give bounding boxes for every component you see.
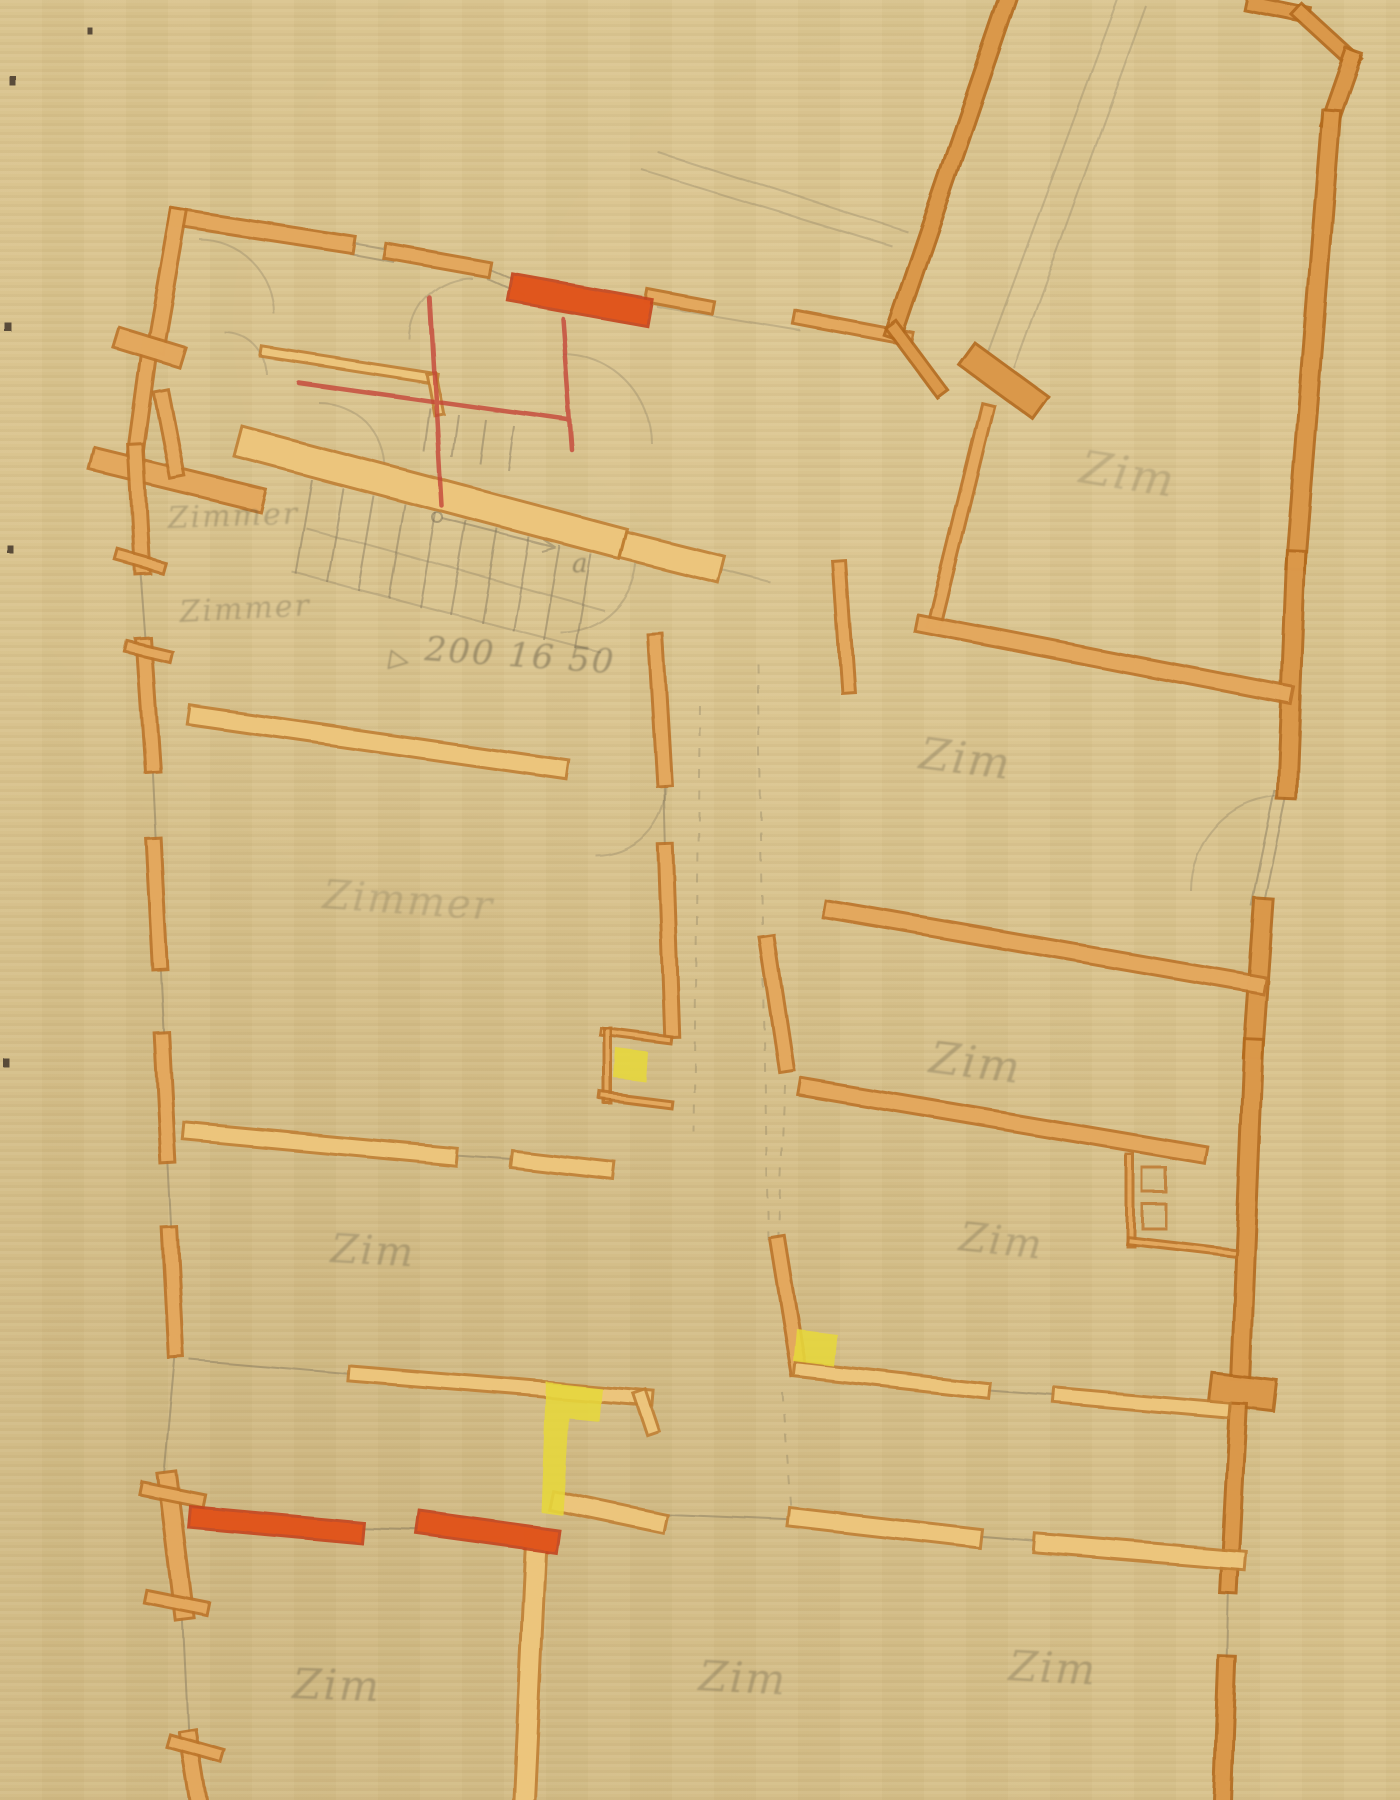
wall-segment (1044, 1544, 1236, 1560)
construction-lines (140, 0, 1287, 1736)
wall-segment (170, 1235, 176, 1350)
room-label: Zim (1074, 439, 1180, 508)
wall-segment (1062, 1396, 1222, 1410)
wall-segment (136, 452, 142, 566)
wall-segment (154, 846, 160, 962)
wall-segment (266, 352, 432, 378)
wall-segment (895, 4, 1006, 330)
room-label: Zim (327, 1226, 416, 1276)
wall-segment (254, 446, 608, 540)
wall-segment (524, 1542, 536, 1800)
wall-segment (808, 1088, 1198, 1154)
yellow-mark-corner (793, 1328, 836, 1366)
wall-segment (978, 362, 1030, 400)
wall-segment (1222, 1665, 1227, 1800)
wall-segment (560, 1502, 656, 1522)
yellow-mark-spine-fixture (614, 1048, 648, 1082)
wall-segment (520, 1160, 606, 1170)
room-label: Zimmer (178, 588, 312, 630)
wall-segment (832, 910, 1256, 984)
floor-plan-drawing: Zimmer Zimmer Zimmer Zim Zim Zim Zim Zim… (0, 0, 1400, 1800)
wall-segment (1226, 1390, 1260, 1394)
wall-segment (392, 252, 482, 268)
fixture-square (1142, 1204, 1166, 1228)
fixture-square (1142, 1168, 1166, 1192)
room-label: Zimmer (319, 872, 496, 930)
fixture-details (1142, 1168, 1166, 1228)
room-label: Zim (290, 1659, 382, 1711)
wall-segment (656, 642, 664, 778)
paper-specks (3, 28, 93, 1067)
wall-segment (1296, 120, 1331, 560)
wall-segment (666, 852, 672, 1030)
dimension-note: 200 16 50 (422, 629, 616, 682)
room-label: Zim (925, 1032, 1025, 1094)
room-label: Zimmer (166, 496, 300, 536)
wall-segment (136, 346, 150, 450)
room-label: Zim (955, 1214, 1046, 1269)
wall-segment (934, 410, 986, 622)
wall-segment (924, 624, 1284, 694)
room-label: Zim (1005, 1641, 1098, 1695)
wall-segment (1287, 560, 1296, 790)
wall-segment (162, 398, 176, 470)
stair-mark: a (572, 549, 590, 579)
dimension-marker: ▷ (387, 643, 414, 676)
wall-segment (162, 1040, 168, 1156)
wall-segment (144, 646, 152, 764)
wall-segment (198, 716, 558, 768)
wall-segment (798, 1518, 972, 1538)
room-label: Zim (915, 728, 1015, 790)
room-label: Zim (695, 1651, 788, 1705)
pencil-layer (3, 0, 1287, 1736)
wall-segment (895, 330, 938, 388)
